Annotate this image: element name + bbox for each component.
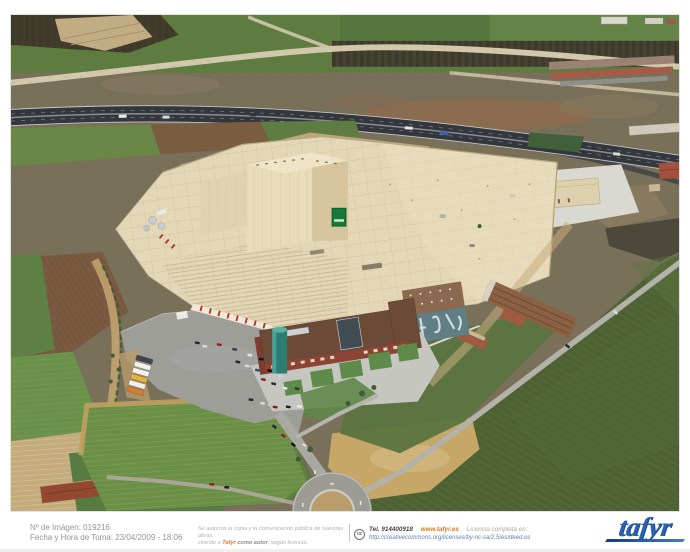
license-note-line2-bold: como autor [236, 540, 268, 546]
license-url-link[interactable]: http://creativecommons.org/licenses/by-n… [369, 534, 530, 542]
license-note-brand: Tafyr [222, 540, 235, 546]
tafyr-photo-page: Nº de Imágen: 019216 Fecha y Hora de Tom… [0, 0, 690, 552]
image-number: Nº de Imágen: 019216 [30, 523, 182, 533]
capture-datetime: Fecha y Hora de Toma: 23/04/2009 - 18:06 [30, 533, 182, 543]
tafyr-logo-underline [605, 539, 685, 542]
aerial-photo [10, 14, 680, 512]
farm-building [601, 17, 627, 24]
tafyr-logo-text: tafyr [617, 514, 673, 540]
license-note: Se autoriza la copia y la comunicación p… [198, 526, 348, 547]
green-logo-sign [332, 208, 346, 226]
license-note-line2-pre: citando a [198, 540, 222, 546]
glass-atrium [336, 317, 362, 350]
website-link[interactable]: www.tafyr.es [421, 526, 459, 533]
caption-bar: Nº de Imágen: 019216 Fecha y Hora de Tom… [0, 512, 690, 552]
license-note-line1: Se autoriza la copia y la comunicación p… [198, 526, 343, 539]
phone-number: Tel. 914400918 [369, 526, 413, 533]
divider [349, 524, 350, 542]
photo-metadata: Nº de Imágen: 019216 Fecha y Hora de Tom… [30, 523, 182, 543]
tafyr-logo: tafyr [602, 514, 688, 542]
contact-block: Tel. 914400918 www.tafyr.es Licencia com… [369, 526, 530, 542]
cc-glyph: cc [357, 531, 362, 537]
creative-commons-icon: cc [354, 529, 365, 540]
license-note-line2-end: , según licencia. [268, 540, 308, 546]
license-link-label: Licencia completa en: [467, 526, 528, 533]
